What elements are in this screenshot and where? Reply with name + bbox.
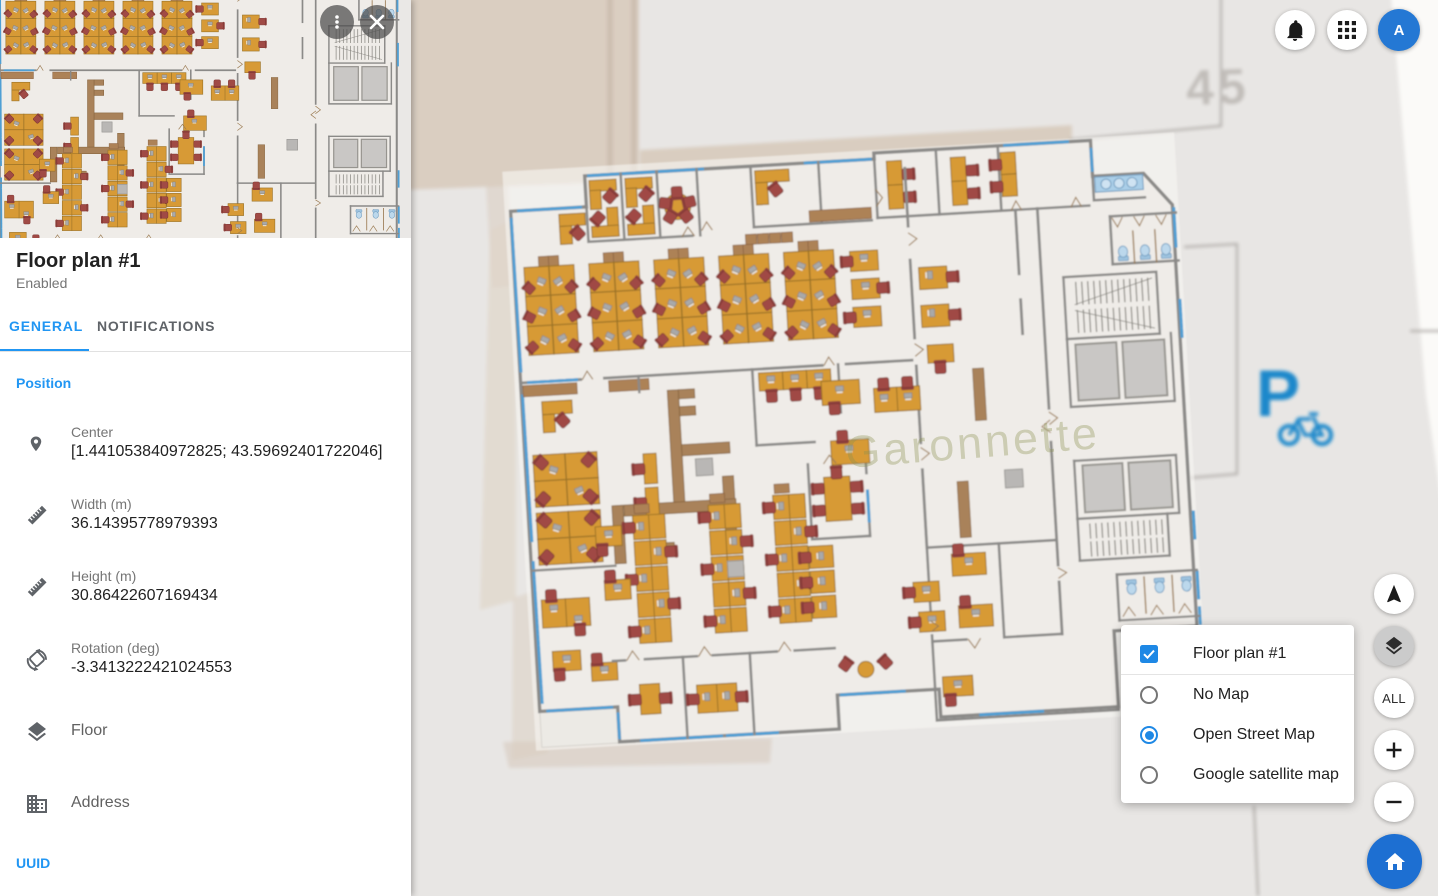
svg-text:P: P bbox=[1256, 356, 1298, 430]
svg-text:45: 45 bbox=[1185, 58, 1251, 116]
